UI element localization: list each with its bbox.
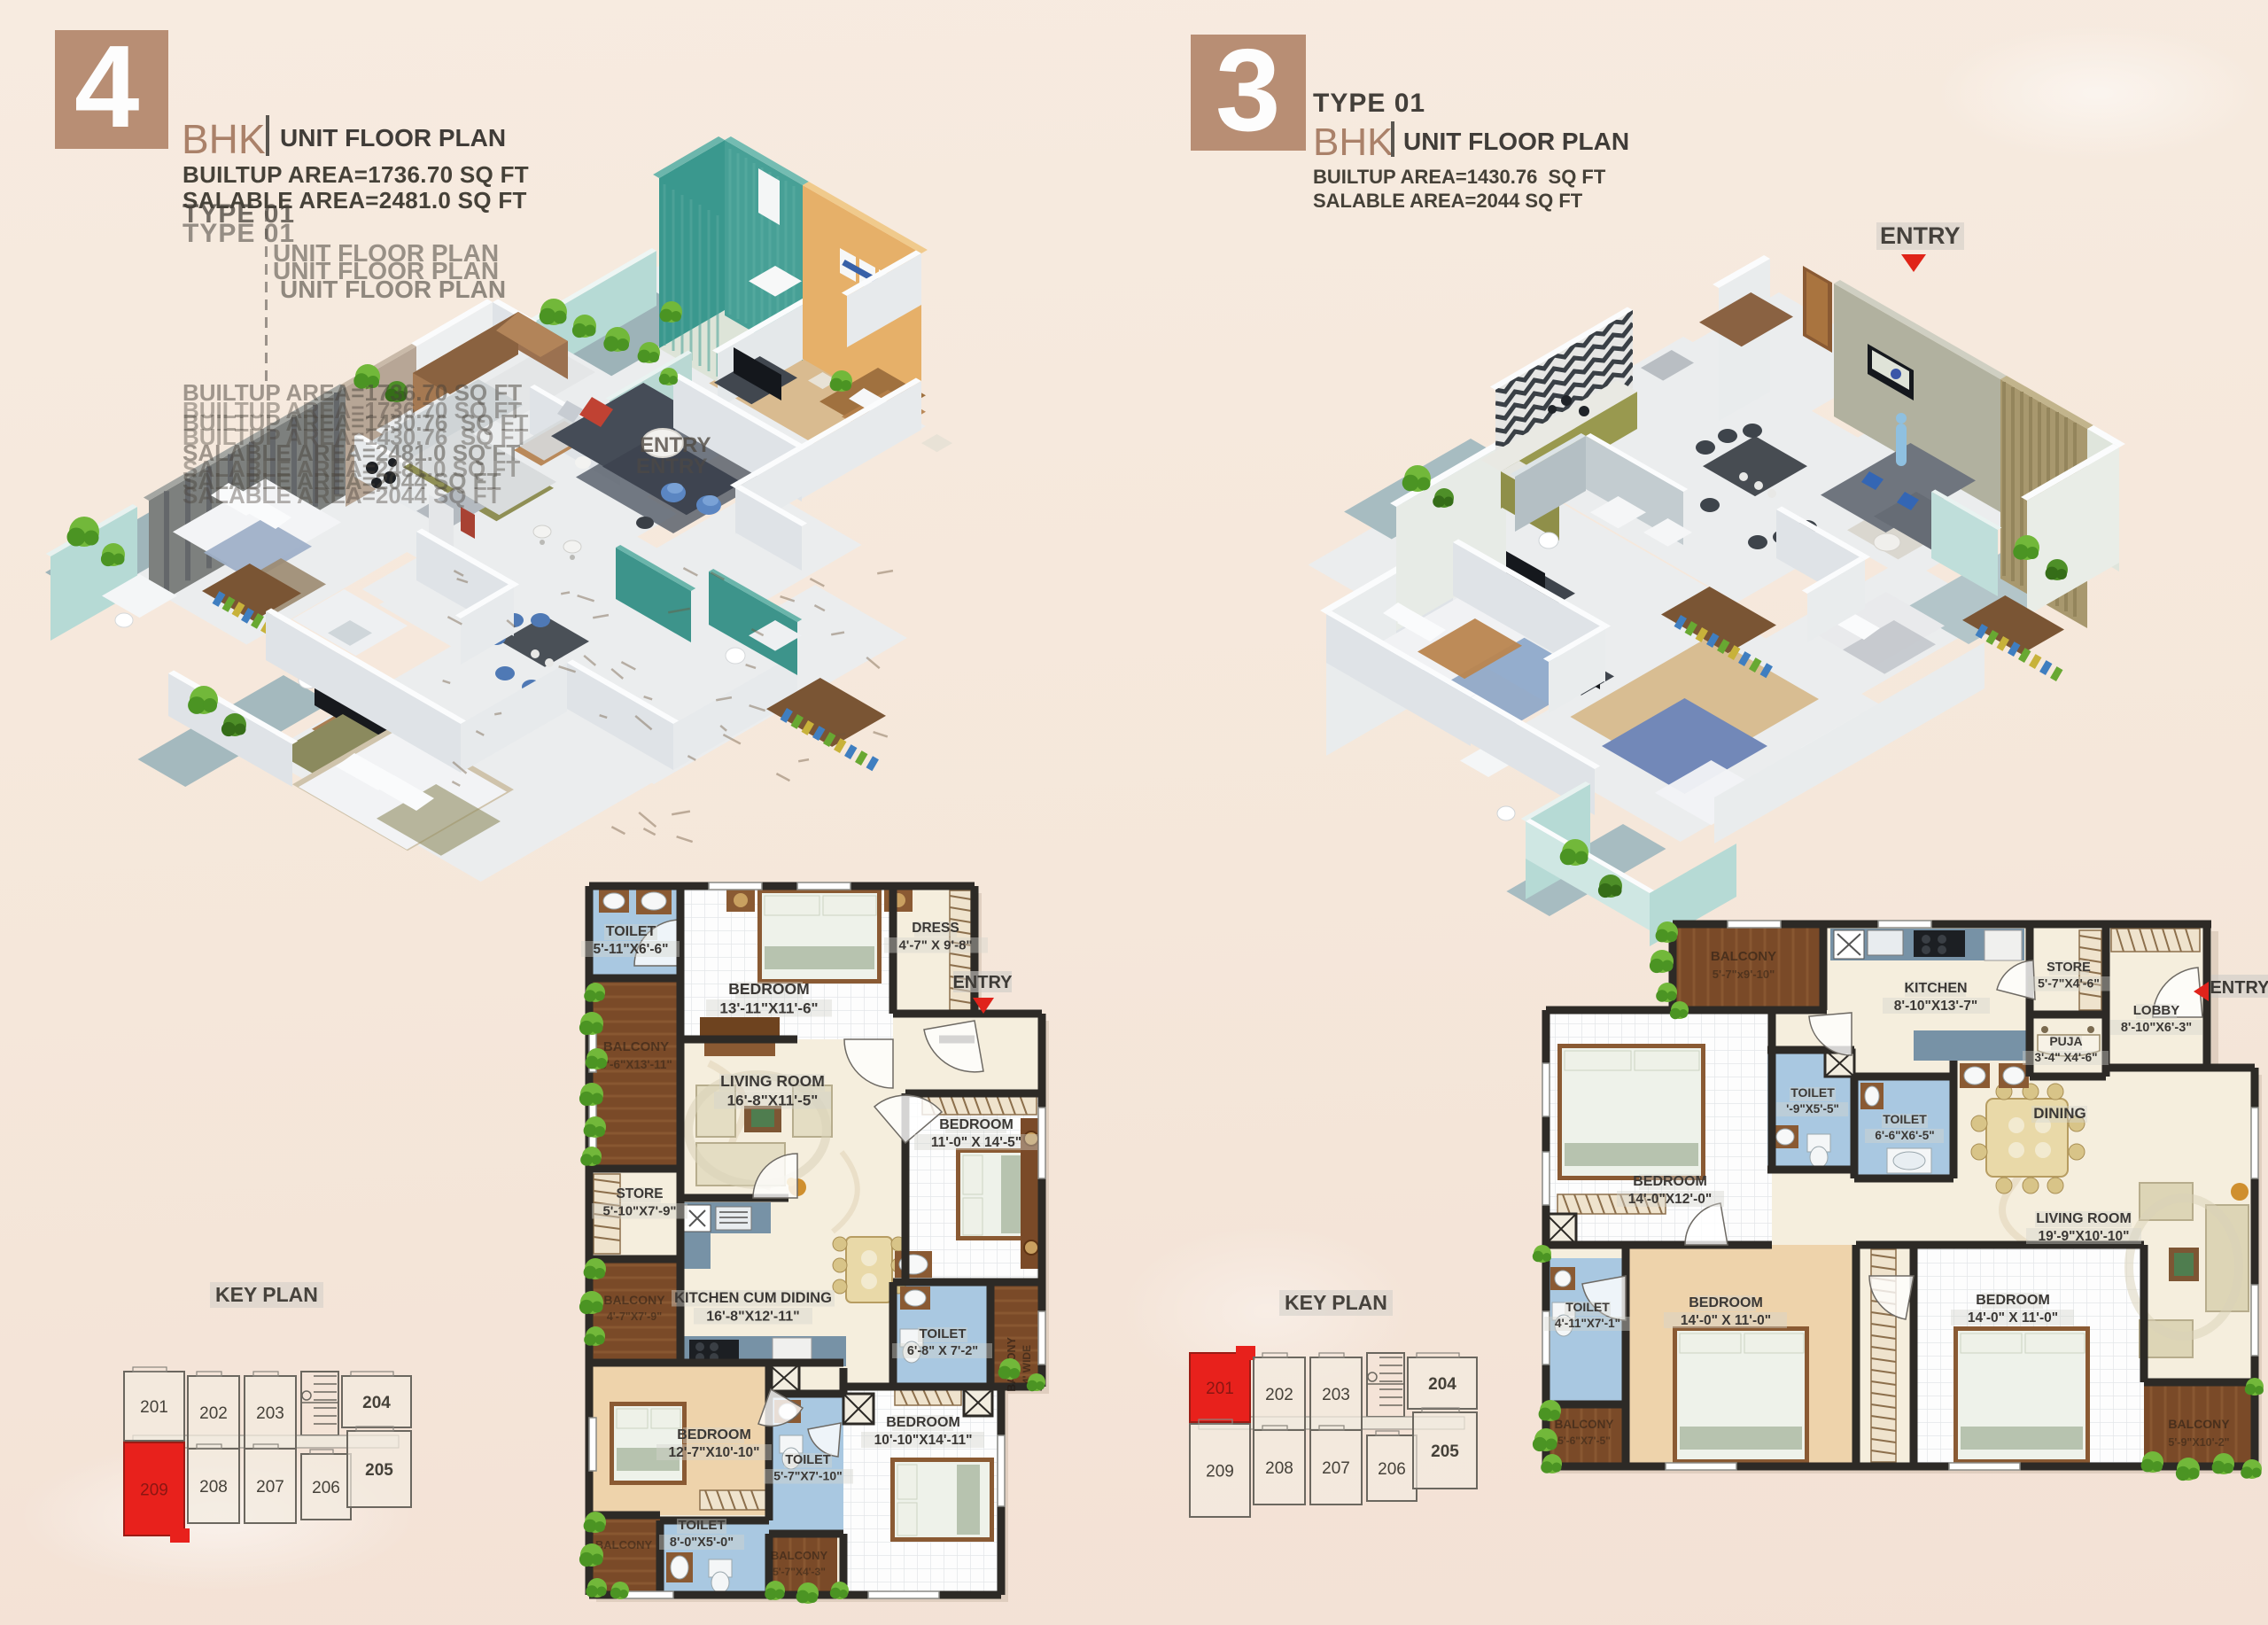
svg-text:19'-9"X10'-10": 19'-9"X10'-10" <box>2038 1229 2129 1244</box>
svg-text:14'-0"X12'-0": 14'-0"X12'-0" <box>1628 1192 1712 1207</box>
svg-text:BALCONY: BALCONY <box>1555 1418 1614 1431</box>
svg-text:16'-8"X12'-11": 16'-8"X12'-11" <box>706 1310 800 1325</box>
svg-text:BEDROOM: BEDROOM <box>1633 1174 1707 1189</box>
svg-text:BALCONY: BALCONY <box>2168 1417 2230 1431</box>
svg-text:BEDROOM: BEDROOM <box>939 1117 1014 1132</box>
svg-text:TOILET: TOILET <box>1883 1112 1927 1126</box>
svg-text:DRESS: DRESS <box>912 921 959 936</box>
svg-text:ENTRY: ENTRY <box>2210 978 2268 998</box>
svg-text:201: 201 <box>1206 1380 1234 1398</box>
svg-text:TOILET: TOILET <box>1790 1085 1835 1100</box>
svg-text:206: 206 <box>1378 1460 1406 1479</box>
svg-text:203: 203 <box>256 1404 284 1423</box>
svg-text:204: 204 <box>1428 1375 1456 1394</box>
svg-text:TOILET: TOILET <box>919 1326 966 1341</box>
svg-text:PUJA: PUJA <box>2049 1034 2082 1048</box>
svg-text:BALCONY: BALCONY <box>603 1039 669 1054</box>
svg-text:6'-6"X6'-5": 6'-6"X6'-5" <box>1875 1129 1934 1142</box>
svg-text:STORE: STORE <box>616 1186 663 1201</box>
svg-text:16'-8"X11'-5": 16'-8"X11'-5" <box>727 1092 819 1109</box>
svg-text:TOILET: TOILET <box>678 1518 725 1533</box>
svg-text:5'-7"X4'-3": 5'-7"X4'-3" <box>773 1566 826 1578</box>
svg-text:4'-7" X 9'-8": 4'-7" X 9'-8" <box>898 938 972 953</box>
svg-text:209: 209 <box>1206 1463 1234 1481</box>
svg-text:BEDROOM: BEDROOM <box>728 980 809 998</box>
svg-text:8'-10"X6'-3": 8'-10"X6'-3" <box>2121 1021 2192 1035</box>
svg-text:205: 205 <box>365 1461 393 1480</box>
svg-text:5'-9"X10'-2": 5'-9"X10'-2" <box>2168 1436 2229 1449</box>
svg-text:BALCONY: BALCONY <box>771 1549 828 1562</box>
svg-text:ENTRY: ENTRY <box>636 455 707 478</box>
svg-text:TOILET: TOILET <box>1565 1300 1610 1314</box>
svg-text:209: 209 <box>140 1481 168 1500</box>
svg-text:TOILET: TOILET <box>606 924 656 939</box>
svg-text:BEDROOM: BEDROOM <box>1976 1293 2050 1308</box>
svg-text:4'-11"X7'-1": 4'-11"X7'-1" <box>1555 1317 1620 1330</box>
svg-text:208: 208 <box>199 1478 228 1497</box>
svg-text:LIVING ROOM: LIVING ROOM <box>720 1072 825 1090</box>
svg-text:5'-7"X4'-6": 5'-7"X4'-6" <box>2038 976 2100 991</box>
svg-text:TOILET: TOILET <box>785 1453 830 1467</box>
svg-text:207: 207 <box>256 1478 284 1497</box>
svg-text:14'-0" X 11'-0": 14'-0" X 11'-0" <box>1681 1313 1771 1328</box>
svg-text:11'-0" X 14'-5": 11'-0" X 14'-5" <box>931 1135 1021 1150</box>
svg-text:202: 202 <box>1265 1386 1293 1404</box>
svg-text:3'-4" X4'-6": 3'-4" X4'-6" <box>2034 1051 2097 1064</box>
svg-text:KITCHEN CUM DIDING: KITCHEN CUM DIDING <box>674 1290 832 1306</box>
svg-text:201: 201 <box>140 1398 168 1417</box>
svg-text:DINING: DINING <box>2033 1105 2086 1122</box>
svg-text:5'-7"X7'-10": 5'-7"X7'-10" <box>773 1469 843 1483</box>
svg-text:5'-7"x9'-10": 5'-7"x9'-10" <box>1713 968 1775 981</box>
svg-text:BEDROOM: BEDROOM <box>886 1415 960 1430</box>
svg-text:12'-7"X10'-10": 12'-7"X10'-10" <box>668 1445 759 1460</box>
svg-text:ENTRY: ENTRY <box>952 973 1013 992</box>
svg-text:6'-8" X 7'-2": 6'-8" X 7'-2" <box>907 1344 978 1358</box>
svg-text:BALCONY: BALCONY <box>1711 949 1776 964</box>
svg-text:204: 204 <box>362 1394 391 1412</box>
svg-text:13'-11"X11'-6": 13'-11"X11'-6" <box>719 1000 818 1017</box>
svg-text:207: 207 <box>1322 1459 1350 1478</box>
svg-text:ENTRY: ENTRY <box>640 433 711 457</box>
svg-text:'-9"X5'-5": '-9"X5'-5" <box>1786 1102 1839 1116</box>
svg-text:BALCONY: BALCONY <box>603 1293 665 1307</box>
svg-text:BEDROOM: BEDROOM <box>1689 1295 1763 1310</box>
svg-text:5'-10"X7'-9": 5'-10"X7'-9" <box>602 1204 676 1219</box>
svg-text:LOBBY: LOBBY <box>2133 1003 2180 1018</box>
svg-text:5'-11"X6'-6": 5'-11"X6'-6" <box>594 942 669 957</box>
svg-text:205: 205 <box>1431 1442 1459 1461</box>
svg-text:BEDROOM: BEDROOM <box>677 1427 751 1442</box>
svg-text:6'-6"X13'-11": 6'-6"X13'-11" <box>600 1058 672 1071</box>
svg-text:208: 208 <box>1265 1459 1293 1478</box>
svg-text:8'-0"X5'-0": 8'-0"X5'-0" <box>670 1536 734 1550</box>
svg-text:202: 202 <box>199 1404 228 1423</box>
svg-text:LIVING ROOM: LIVING ROOM <box>2036 1211 2132 1226</box>
svg-text:203: 203 <box>1322 1386 1350 1404</box>
svg-text:206: 206 <box>312 1479 340 1497</box>
svg-text:5'-6"X7'-5": 5'-6"X7'-5" <box>1557 1435 1611 1447</box>
svg-text:14'-0" X 11'-0": 14'-0" X 11'-0" <box>1968 1310 2058 1326</box>
svg-text:10'-10"X14'-11": 10'-10"X14'-11" <box>874 1433 973 1448</box>
svg-text:STORE: STORE <box>2047 960 2091 975</box>
svg-text:8'-10"X13'-7": 8'-10"X13'-7" <box>1894 999 1977 1014</box>
svg-text:4'-7"X7'-9": 4'-7"X7'-9" <box>607 1310 662 1323</box>
svg-text:KITCHEN: KITCHEN <box>1904 981 1967 996</box>
svg-text:BALCONY: BALCONY <box>595 1538 653 1551</box>
